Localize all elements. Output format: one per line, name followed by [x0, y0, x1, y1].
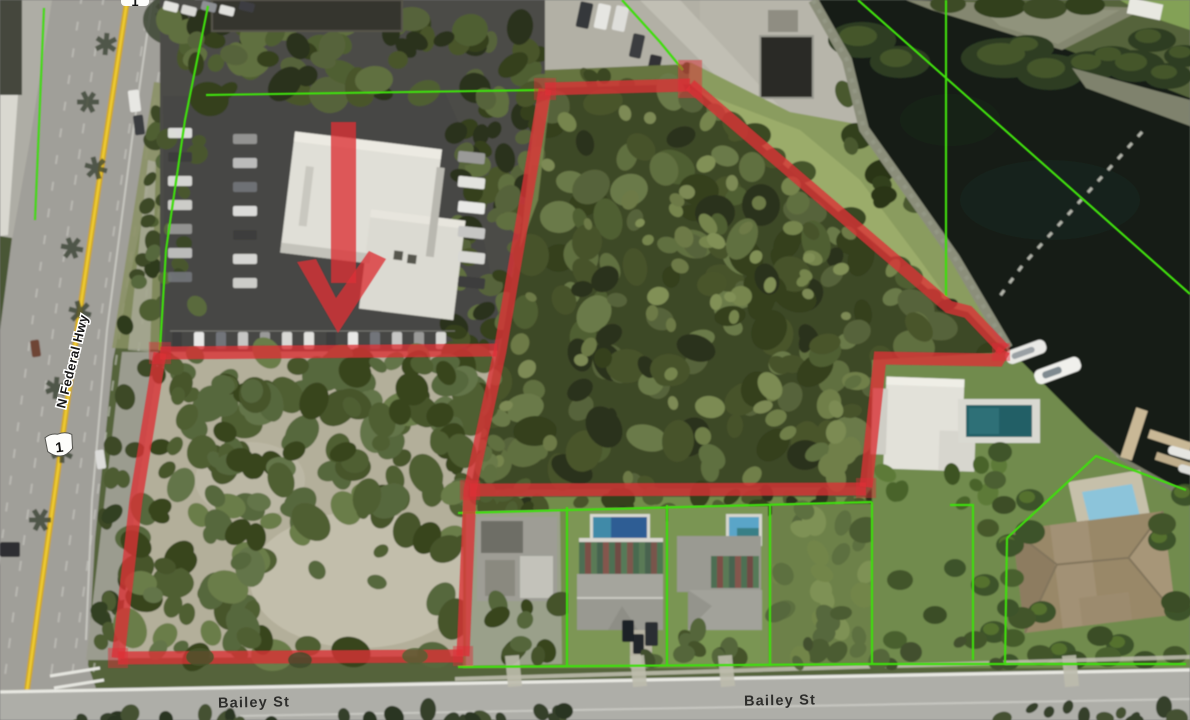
svg-text:Bailey St: Bailey St	[744, 692, 816, 709]
svg-text:Bailey St: Bailey St	[218, 694, 290, 711]
svg-text:1: 1	[131, 0, 138, 9]
